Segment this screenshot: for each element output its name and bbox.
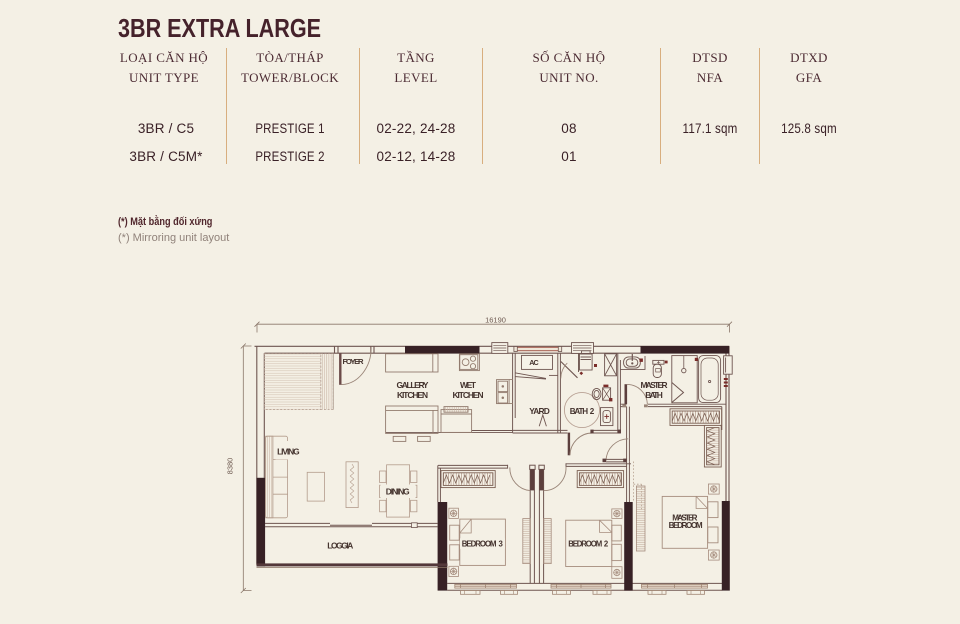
- svg-text:BEDROOM: BEDROOM: [669, 521, 703, 530]
- svg-text:MASTER: MASTER: [641, 380, 668, 390]
- svg-text:BEDROOM 2: BEDROOM 2: [568, 539, 609, 548]
- svg-text:AC: AC: [529, 358, 539, 367]
- svg-text:GALLERY: GALLERY: [397, 380, 429, 390]
- svg-text:DINING: DINING: [386, 486, 410, 496]
- svg-text:YARD: YARD: [529, 406, 550, 416]
- svg-text:FOYER: FOYER: [343, 357, 364, 366]
- svg-text:KITCHEN: KITCHEN: [397, 390, 428, 400]
- svg-text:BEDROOM 3: BEDROOM 3: [462, 539, 504, 548]
- svg-text:BATH: BATH: [645, 390, 663, 400]
- svg-text:KITCHEN: KITCHEN: [453, 390, 484, 400]
- svg-text:LOGGIA: LOGGIA: [327, 540, 353, 550]
- svg-text:8380: 8380: [226, 458, 235, 475]
- svg-text:16190: 16190: [485, 316, 506, 325]
- svg-text:BATH 2: BATH 2: [570, 407, 595, 416]
- svg-text:WET: WET: [460, 380, 477, 390]
- svg-text:LIVING: LIVING: [277, 446, 300, 456]
